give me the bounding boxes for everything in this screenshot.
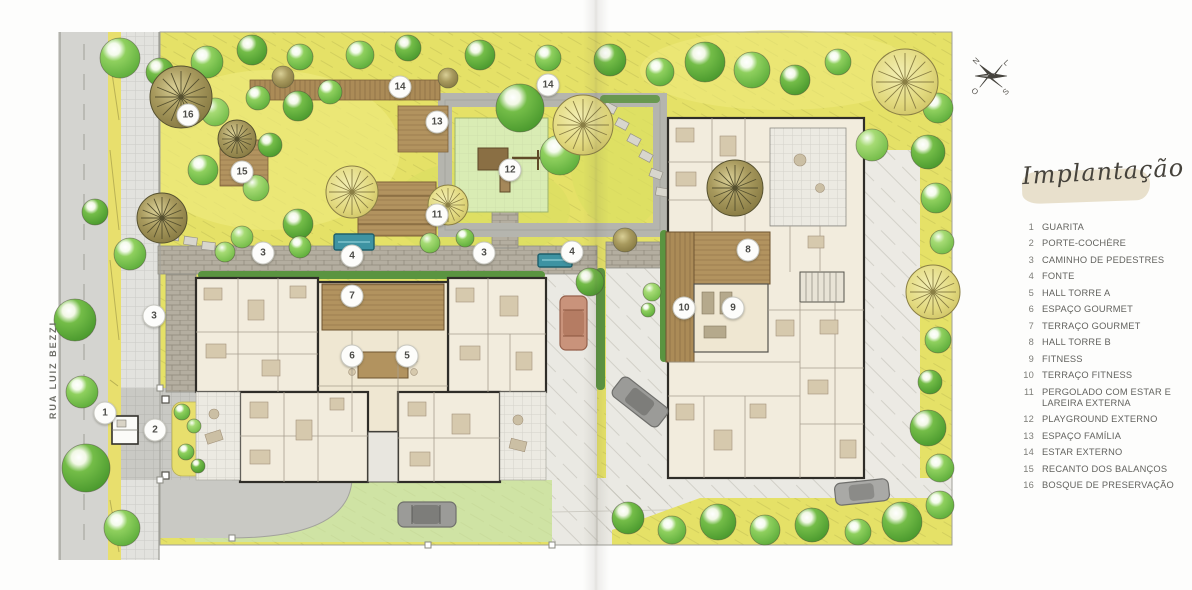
- page: RUA LUIZ BEZZI 1233344567891011121314141…: [0, 0, 1192, 590]
- guarita-building: [112, 416, 138, 444]
- legend-item-label: HALL TORRE B: [1042, 337, 1111, 348]
- map-marker-14: 14: [389, 76, 412, 99]
- compass-west-label: O: [969, 86, 980, 97]
- compass-rose: N L S O: [955, 38, 1027, 110]
- legend-item-number: 13: [1022, 431, 1034, 442]
- legend-item-label: HALL TORRE A: [1042, 288, 1110, 299]
- legend-item-5: 5HALL TORRE A: [1022, 288, 1178, 299]
- map-marker-12: 12: [499, 159, 522, 182]
- torre-a-building: [196, 278, 546, 482]
- map-marker-16: 16: [177, 104, 200, 127]
- legend-item-number: 11: [1022, 387, 1034, 409]
- legend-item-4: 4FONTE: [1022, 271, 1178, 282]
- legend-item-number: 3: [1022, 255, 1034, 266]
- legend-item-label: ESPAÇO GOURMET: [1042, 304, 1133, 315]
- map-marker-3: 3: [252, 242, 275, 265]
- legend-item-label: TERRAÇO FITNESS: [1042, 370, 1132, 381]
- legend-item-8: 8HALL TORRE B: [1022, 337, 1178, 348]
- legend-item-label: GUARITA: [1042, 222, 1084, 233]
- map-marker-11: 11: [426, 204, 449, 227]
- map-marker-3: 3: [143, 305, 166, 328]
- map-marker-13: 13: [426, 111, 449, 134]
- legend-item-label: ESTAR EXTERNO: [1042, 447, 1122, 458]
- legend-item-number: 2: [1022, 238, 1034, 249]
- legend-item-label: FITNESS: [1042, 354, 1083, 365]
- legend-item-9: 9FITNESS: [1022, 354, 1178, 365]
- legend-item-number: 1: [1022, 222, 1034, 233]
- map-marker-4: 4: [341, 245, 364, 268]
- legend-item-7: 7TERRAÇO GOURMET: [1022, 321, 1178, 332]
- compass-south-label: S: [1001, 87, 1011, 97]
- legend-item-number: 5: [1022, 288, 1034, 299]
- map-marker-7: 7: [341, 285, 364, 308]
- compass-star: [975, 65, 1007, 88]
- legend-item-label: ESPAÇO FAMÍLIA: [1042, 431, 1121, 442]
- map-marker-9: 9: [722, 297, 745, 320]
- legend-item-12: 12PLAYGROUND EXTERNO: [1022, 414, 1178, 425]
- legend-title-block: Implantação: [1022, 158, 1178, 206]
- street-name-label: RUA LUIZ BEZZI: [48, 310, 58, 430]
- legend-item-label: PORTE-COCHÈRE: [1042, 238, 1126, 249]
- map-marker-14: 14: [537, 74, 560, 97]
- legend-item-label: BOSQUE DE PRESERVAÇÃO: [1042, 480, 1174, 491]
- legend-item-label: RECANTO DOS BALANÇOS: [1042, 464, 1167, 475]
- map-marker-1: 1: [94, 402, 117, 425]
- legend-item-number: 4: [1022, 271, 1034, 282]
- map-marker-5: 5: [396, 345, 419, 368]
- compass-east-label: L: [1002, 58, 1012, 68]
- legend-item-number: 14: [1022, 447, 1034, 458]
- legend-item-label: PLAYGROUND EXTERNO: [1042, 414, 1158, 425]
- legend-item-1: 1GUARITA: [1022, 222, 1178, 233]
- legend-panel: Implantação 1GUARITA2PORTE-COCHÈRE3CAMIN…: [1022, 158, 1178, 496]
- torre-b-building: [666, 118, 864, 478]
- legend-item-number: 6: [1022, 304, 1034, 315]
- legend-item-number: 12: [1022, 414, 1034, 425]
- legend-item-number: 9: [1022, 354, 1034, 365]
- legend-item-number: 7: [1022, 321, 1034, 332]
- legend-item-11: 11PERGOLADO COM ESTAR E LAREIRA EXTERNA: [1022, 387, 1178, 409]
- map-marker-10: 10: [673, 297, 696, 320]
- legend-item-13: 13ESPAÇO FAMÍLIA: [1022, 431, 1178, 442]
- map-marker-4: 4: [561, 241, 584, 264]
- legend-item-3: 3CAMINHO DE PEDESTRES: [1022, 255, 1178, 266]
- map-marker-2: 2: [144, 419, 167, 442]
- map-marker-3: 3: [473, 242, 496, 265]
- legend-list: 1GUARITA2PORTE-COCHÈRE3CAMINHO DE PEDEST…: [1022, 222, 1178, 491]
- legend-item-number: 16: [1022, 480, 1034, 491]
- legend-item-14: 14ESTAR EXTERNO: [1022, 447, 1178, 458]
- legend-item-10: 10TERRAÇO FITNESS: [1022, 370, 1178, 381]
- legend-item-label: FONTE: [1042, 271, 1075, 282]
- map-marker-15: 15: [231, 161, 254, 184]
- legend-item-6: 6ESPAÇO GOURMET: [1022, 304, 1178, 315]
- legend-item-number: 8: [1022, 337, 1034, 348]
- legend-item-label: CAMINHO DE PEDESTRES: [1042, 255, 1164, 266]
- legend-item-number: 15: [1022, 464, 1034, 475]
- map-marker-6: 6: [341, 345, 364, 368]
- legend-item-16: 16BOSQUE DE PRESERVAÇÃO: [1022, 480, 1178, 491]
- legend-item-label: PERGOLADO COM ESTAR E LAREIRA EXTERNA: [1042, 387, 1178, 409]
- legend-item-number: 10: [1022, 370, 1034, 381]
- legend-item-label: TERRAÇO GOURMET: [1042, 321, 1141, 332]
- legend-item-2: 2PORTE-COCHÈRE: [1022, 238, 1178, 249]
- legend-item-15: 15RECANTO DOS BALANÇOS: [1022, 464, 1178, 475]
- legend-title: Implantação: [1021, 154, 1178, 190]
- map-marker-8: 8: [737, 239, 760, 262]
